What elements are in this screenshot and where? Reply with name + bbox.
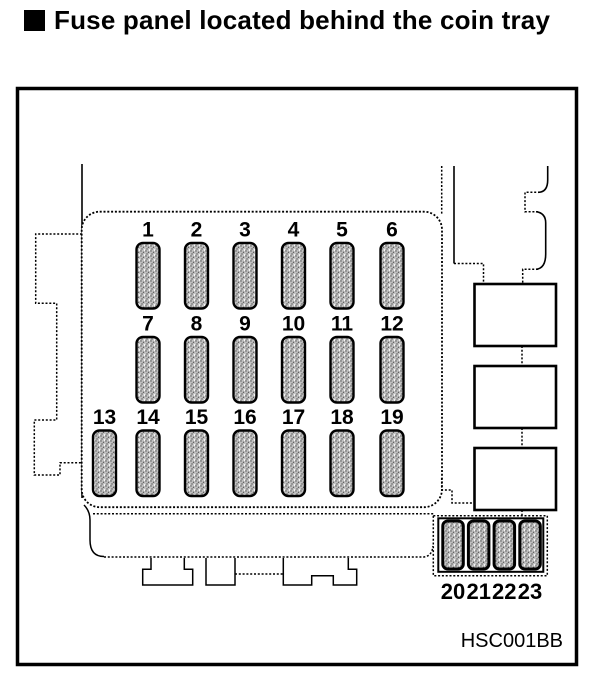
fuse-12: 12 xyxy=(380,313,403,403)
fuse-21-body xyxy=(468,521,489,569)
fuse-19: 19 xyxy=(380,406,403,496)
fuse-4-body xyxy=(282,243,305,309)
fuse-23-body xyxy=(520,521,541,569)
fuse-3-label: 3 xyxy=(239,219,251,242)
fuse-6-body xyxy=(381,243,404,309)
fuse-21-label: 21 xyxy=(466,579,490,604)
fuse-16-label: 16 xyxy=(233,406,256,429)
fuse-17-label: 17 xyxy=(282,406,305,429)
fuse-21: 21 xyxy=(466,521,490,604)
fuse-19-body xyxy=(381,431,404,497)
fuse-8-body xyxy=(185,337,208,403)
fuse-15-label: 15 xyxy=(185,406,209,429)
fuse-19-label: 19 xyxy=(380,406,403,429)
fuse-13: 13 xyxy=(93,406,116,496)
fuse-1-body xyxy=(137,243,160,309)
fuse-18-label: 18 xyxy=(330,406,354,429)
fuse-6-label: 6 xyxy=(386,219,398,242)
fuse-5-body xyxy=(331,243,354,309)
fuse-2-label: 2 xyxy=(191,219,203,242)
fuse-12-body xyxy=(381,337,404,403)
fuse-16-body xyxy=(234,431,257,497)
fuse-15: 15 xyxy=(185,406,209,496)
fuse-14-body xyxy=(137,431,160,497)
relay-box-2 xyxy=(475,366,557,428)
fuse-11-body xyxy=(331,337,354,403)
fuse-9-body xyxy=(234,337,257,403)
fuse-18-body xyxy=(331,431,354,497)
page: Fuse panel located behind the coin tray xyxy=(0,0,608,676)
fuse-23: 23 xyxy=(518,521,542,604)
fuse-22-body xyxy=(494,521,514,569)
fuse-13-label: 13 xyxy=(93,406,116,429)
fuse-10-body xyxy=(282,337,305,403)
fuse-7-label: 7 xyxy=(142,313,154,336)
fuse-22: 22 xyxy=(492,521,516,604)
fuse-panel-diagram: 12345678910111213141516171819 20212223 H… xyxy=(0,0,608,676)
fuse-17: 17 xyxy=(282,406,305,496)
relay-box-3 xyxy=(475,448,557,510)
fuse-8-label: 8 xyxy=(191,313,203,336)
fuse-20: 20 xyxy=(441,521,465,604)
fuse-5-label: 5 xyxy=(336,219,348,242)
fuse-20-body xyxy=(443,521,464,569)
fuse-9-label: 9 xyxy=(239,313,251,336)
fuse-23-label: 23 xyxy=(518,579,542,604)
fuse-11-label: 11 xyxy=(331,313,354,336)
fuse-14-label: 14 xyxy=(136,406,160,429)
fuse-11: 11 xyxy=(331,313,354,403)
fuse-2-body xyxy=(185,243,208,309)
fuse-3-body xyxy=(234,243,257,309)
fuse-18: 18 xyxy=(330,406,354,496)
fuse-4-label: 4 xyxy=(288,219,300,242)
figure-code: HSC001BB xyxy=(461,630,563,652)
fuse-20-label: 20 xyxy=(441,579,465,604)
fuse-7-body xyxy=(137,337,160,403)
fuse-16: 16 xyxy=(233,406,256,496)
fuse-1-label: 1 xyxy=(142,219,154,242)
fuse-17-body xyxy=(282,431,305,497)
fuse-22-label: 22 xyxy=(492,579,516,604)
fuse-10: 10 xyxy=(282,313,305,403)
fuse-14: 14 xyxy=(136,406,160,496)
relay-box-1 xyxy=(475,284,557,346)
fuse-12-label: 12 xyxy=(380,313,403,336)
fuse-13-body xyxy=(93,431,116,497)
fuse-10-label: 10 xyxy=(282,313,305,336)
fuse-15-body xyxy=(185,431,208,497)
